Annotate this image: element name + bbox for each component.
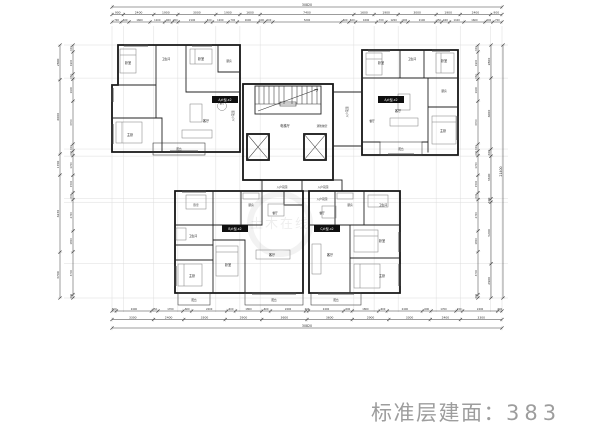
dim-label: 2400 xyxy=(402,307,409,311)
unit-tag-label: A户型-x2 xyxy=(384,97,397,102)
dim-label: 600 xyxy=(229,307,234,311)
room-label-bedroom: 卧室 xyxy=(441,58,447,63)
room-label-dining: 餐厅 xyxy=(272,211,278,215)
core: 电梯厅 消防前室 入户花园 入户花园 xyxy=(243,84,362,191)
room-label-balcony: 阳台 xyxy=(398,147,404,151)
room-label-master: 主卧 xyxy=(127,132,134,137)
dim-label: 600 xyxy=(166,18,171,22)
dim-label: 2400 xyxy=(477,307,484,311)
title-block: 标准层建面：383 xyxy=(371,401,561,425)
dim-label: 2400 xyxy=(285,307,292,311)
dim-label: 1800 xyxy=(245,307,252,311)
dim-label: 600 xyxy=(69,193,73,198)
dim-label: 1600 xyxy=(360,11,368,15)
dim-label: 600 xyxy=(474,193,478,198)
watermark-text: 土木在线 xyxy=(250,217,310,232)
dim-label: 300 xyxy=(69,293,73,298)
dim-label: 300 xyxy=(487,198,491,204)
dim-label: 2400 xyxy=(442,316,450,320)
dim-label: 2700 xyxy=(69,212,73,219)
unit-bottom-right-windows xyxy=(318,232,400,295)
dim-label: 3600 xyxy=(326,316,334,320)
dim-label: 6000 xyxy=(487,110,491,118)
dim-label: 2900 xyxy=(240,316,248,320)
dim-label: 1900 xyxy=(474,59,478,66)
dim-label: 2800 xyxy=(487,58,491,66)
watermark: 土木在线 xyxy=(250,194,310,254)
room-label-bath: 卫生间 xyxy=(189,234,197,238)
dim-label: 3700 xyxy=(69,270,73,277)
dim-label: 600 xyxy=(69,46,73,51)
room-label-balcony: 阳台 xyxy=(176,147,182,151)
dim-label: 1900 xyxy=(444,11,452,15)
dim-label: 600 xyxy=(424,307,429,311)
dim-label: 450 xyxy=(436,18,441,22)
grid-lines xyxy=(64,26,508,312)
unit-bottom-left: 卧室 厨房 餐厅 卫生间 主卧 卧室 客厅 阳台 阳台 B户型-x2 xyxy=(175,191,303,305)
unit-bottom-right: 入户花园 餐厅 厨房 卫生间 客厅 卧室 主卧 阳台 C户型-x2 xyxy=(309,191,400,305)
dim-label: 600 xyxy=(486,18,491,22)
dim-label: 1700 xyxy=(474,162,478,169)
dim-label: 3700 xyxy=(474,270,478,277)
unit-tag-label: B户型-x2 xyxy=(228,226,241,231)
room-label-bedroom: 卧室 xyxy=(225,262,231,267)
dim-label: 600 xyxy=(474,145,478,150)
page-title: 标准层建面：383 xyxy=(371,401,561,425)
dim-label: 1500 xyxy=(69,180,73,187)
dim-label: 6000 xyxy=(56,113,60,121)
dim-label: 600 xyxy=(264,307,269,311)
dim-label: 1600 xyxy=(245,18,252,22)
dim-label: 3700 xyxy=(56,271,60,279)
unit-tag-label: C户型-x2 xyxy=(320,226,333,231)
room-label-dining: 餐厅 xyxy=(369,119,375,123)
unit-top-right: 卧室 卫生间 卧室 厨房 主卧 客厅 餐厅 阳台 入户花园 A户型-x2 xyxy=(345,50,458,155)
dim-label: 3700 xyxy=(69,119,73,126)
dim-label: 500 xyxy=(207,18,212,22)
dim-label: 600 xyxy=(123,18,128,22)
dim-label: 1800 xyxy=(69,238,73,245)
dim-label: 600 xyxy=(346,307,351,311)
room-label-living: 客厅 xyxy=(203,118,210,123)
room-label-bedroom: 卧室 xyxy=(193,203,199,207)
room-label-kitchen: 厨房 xyxy=(226,59,232,63)
room-label-balcony: 阳台 xyxy=(191,298,197,302)
dim-label: 700 xyxy=(379,18,384,22)
stairwell xyxy=(255,86,321,114)
dim-label: 1900 xyxy=(224,11,232,15)
dim-label: 450 xyxy=(152,307,157,311)
title-value: 383 xyxy=(506,401,561,425)
dim-label: 600 xyxy=(69,145,73,150)
dim-label: 30820 xyxy=(302,324,312,328)
dim-label: 1600 xyxy=(471,18,478,22)
dim-label: 30820 xyxy=(302,3,312,7)
room-label-entry-garden: 入户花园 xyxy=(317,197,328,201)
dim-label: 500 xyxy=(402,18,407,22)
dim-label: 300 xyxy=(474,293,478,298)
dim-label: 600 xyxy=(267,18,272,22)
dim-label: 3300 xyxy=(201,316,209,320)
dim-label: 450 xyxy=(474,74,478,79)
dim-label: 3000 xyxy=(413,11,421,15)
dim-label: 5200 xyxy=(487,229,491,237)
dim-label: 1800 xyxy=(362,307,369,311)
dim-label: 600 xyxy=(487,150,491,156)
dim-label: 7400 xyxy=(303,11,311,15)
title-label: 标准层建面： xyxy=(371,401,506,425)
unit-tag-label: A户型-x2 xyxy=(218,97,231,102)
room-label-bath: 卫生间 xyxy=(379,203,387,207)
dim-label: 1600 xyxy=(363,18,370,22)
room-label-entry-garden: 入户花园 xyxy=(231,110,235,121)
dim-label: 2800 xyxy=(56,58,60,66)
floor-plan-canvas: 3082090024001900300019001600740016001900… xyxy=(0,0,610,432)
room-label-living: 客厅 xyxy=(395,108,402,113)
dim-label: 3300 xyxy=(477,316,485,320)
room-label-master: 主卧 xyxy=(440,128,447,133)
dim-label: 400 xyxy=(474,150,478,155)
room-label-master: 主卧 xyxy=(189,273,196,278)
dim-label: 900 xyxy=(493,11,499,15)
dim-label: 2100 xyxy=(419,18,426,22)
unit-top-left: 卧室 卫生间 卧室 厨房 主卧 客厅 餐厅 阳台 入户花园 A户型-x2 xyxy=(112,45,240,155)
dim-label: 1700 xyxy=(69,162,73,169)
dim-label: 3600 xyxy=(487,174,491,182)
dim-label: 450 xyxy=(69,74,73,79)
room-label-bath: 卫生间 xyxy=(408,57,416,61)
room-label-bath: 卫生间 xyxy=(162,57,170,61)
dim-label: 600 xyxy=(443,18,448,22)
dim-label: 600 xyxy=(381,307,386,311)
dim-label: 1500 xyxy=(474,180,478,187)
core-outer-wall xyxy=(243,84,333,180)
dim-label: 500 xyxy=(350,18,355,22)
room-label-kitchen: 厨房 xyxy=(441,89,447,93)
dim-label: 3300 xyxy=(406,316,414,320)
unit-top-left-furniture xyxy=(116,49,227,143)
dim-label: 6230 xyxy=(56,210,60,218)
room-label-living: 客厅 xyxy=(327,252,334,257)
dim-label: 400 xyxy=(69,150,73,155)
room-label-entry-garden: 入户花园 xyxy=(318,185,329,189)
room-label-living: 客厅 xyxy=(269,252,276,257)
room-label-kitchen: 厨房 xyxy=(347,203,353,207)
dim-label: 1900 xyxy=(474,87,478,94)
dim-label: 500 xyxy=(259,18,264,22)
dim-label: 700 xyxy=(114,18,119,22)
room-label-balcony: 阳台 xyxy=(271,298,277,302)
room-label-fire-lobby: 消防前室 xyxy=(317,124,328,128)
dim-label: 2900 xyxy=(487,277,491,285)
dim-label: 600 xyxy=(343,18,348,22)
dim-label: 2700 xyxy=(474,212,478,219)
dim-label: 1600 xyxy=(246,11,254,15)
room-label-bedroom: 卧室 xyxy=(125,60,131,65)
dim-label: 2400 xyxy=(131,307,138,311)
dim-label: 2400 xyxy=(135,11,143,15)
dim-label: 1800 xyxy=(474,238,478,245)
dim-label: 1900 xyxy=(69,59,73,66)
dim-label: 1900 xyxy=(162,11,170,15)
dim-label: 600 xyxy=(185,307,190,311)
dim-label: 1700 xyxy=(56,161,60,169)
room-label-entry-garden: 入户花园 xyxy=(277,185,288,189)
dim-label: 3600 xyxy=(281,316,289,320)
dim-label: 1200 xyxy=(217,18,224,22)
dim-label: 2400 xyxy=(323,307,330,311)
dim-label: 700 xyxy=(230,18,235,22)
dim-label: 1600 xyxy=(136,18,143,22)
dim-label: 1900 xyxy=(69,87,73,94)
dim-label: 600 xyxy=(474,46,478,51)
dim-label: 2100 xyxy=(189,18,196,22)
room-label-dining: 餐厅 xyxy=(319,211,325,215)
dim-label: 5200 xyxy=(304,18,311,22)
dim-label: 1100 xyxy=(454,18,461,22)
dim-label: 300 xyxy=(112,307,117,311)
dim-label: 200 xyxy=(305,307,310,311)
dim-label: 1100 xyxy=(154,18,161,22)
room-label-balcony: 阳台 xyxy=(333,298,339,302)
dim-label: 900 xyxy=(115,11,121,15)
dim-label: 450 xyxy=(457,307,462,311)
dim-label: 3700 xyxy=(474,119,478,126)
dim-label: 2900 xyxy=(367,316,375,320)
dim-label: 700 xyxy=(495,18,500,22)
room-label-bedroom: 卧室 xyxy=(198,56,204,61)
dim-label: 450 xyxy=(173,18,178,22)
dim-label: 3000 xyxy=(193,11,201,15)
room-label-entry-garden: 入户花园 xyxy=(345,106,349,117)
dim-label: 21400 xyxy=(499,166,503,176)
dim-label: 3300 xyxy=(129,316,137,320)
dim-label: 1700 xyxy=(440,307,447,311)
room-label-bedroom: 卧室 xyxy=(378,60,384,65)
dim-label: 2400 xyxy=(472,11,480,15)
dim-label: 300 xyxy=(497,307,502,311)
dim-label: 1900 xyxy=(382,11,390,15)
room-label-kitchen: 厨房 xyxy=(248,203,254,207)
dim-label: 2400 xyxy=(165,316,173,320)
room-label-elevator-hall: 电梯厅 xyxy=(280,123,290,128)
dim-label: 1700 xyxy=(167,307,174,311)
room-label-master: 主卧 xyxy=(379,273,386,278)
dim-label: 1200 xyxy=(390,18,397,22)
dim-label: 2400 xyxy=(206,307,213,311)
core-right-corridor xyxy=(333,92,362,146)
room-label-bedroom: 卧室 xyxy=(379,238,385,243)
